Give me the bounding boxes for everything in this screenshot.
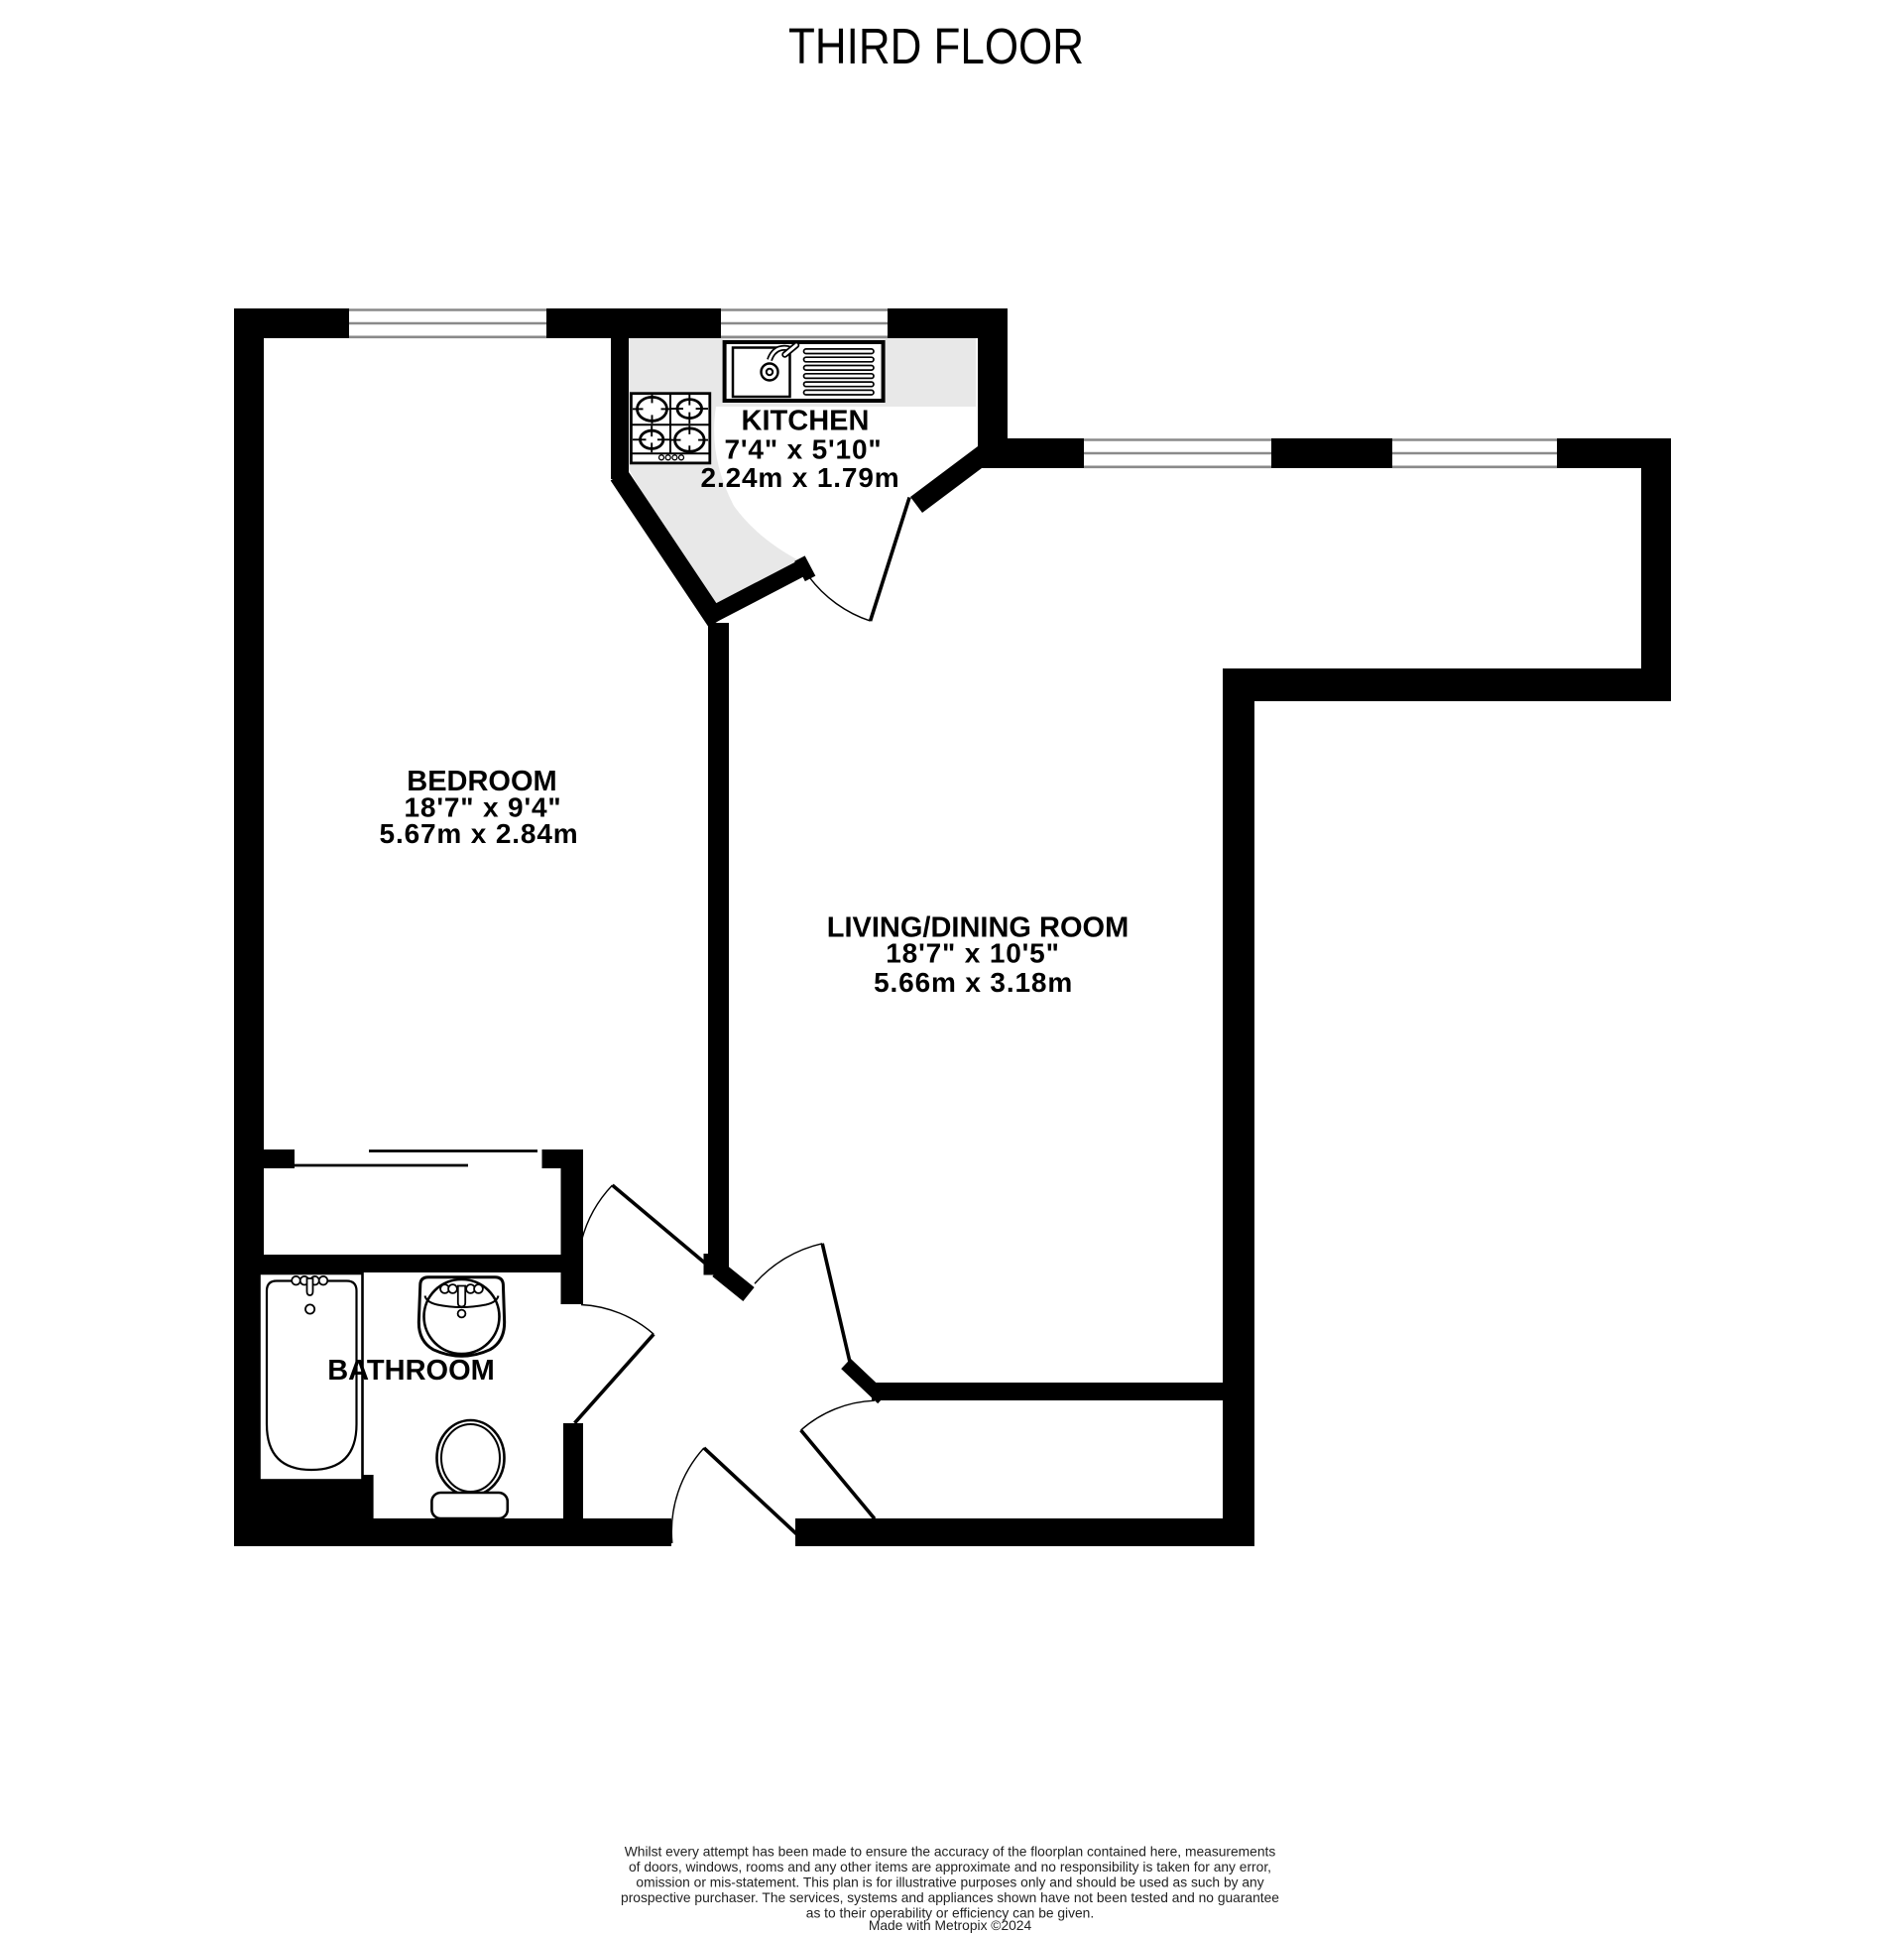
svg-text:2.24m x 1.79m: 2.24m x 1.79m	[701, 462, 900, 493]
svg-text:THIRD FLOOR: THIRD FLOOR	[788, 18, 1084, 74]
svg-text:Whilst every attempt has been: Whilst every attempt has been made to en…	[625, 1845, 1276, 1860]
svg-text:BATHROOM: BATHROOM	[327, 1355, 495, 1387]
svg-text:KITCHEN: KITCHEN	[742, 406, 870, 437]
svg-text:18'7" x 10'5": 18'7" x 10'5"	[886, 938, 1059, 969]
svg-text:prospective purchaser. The ser: prospective purchaser. The services, sys…	[621, 1890, 1279, 1905]
svg-text:Made with Metropix ©2024: Made with Metropix ©2024	[869, 1918, 1032, 1933]
svg-text:5.67m x 2.84m: 5.67m x 2.84m	[380, 818, 579, 849]
svg-text:5.66m x 3.18m: 5.66m x 3.18m	[874, 967, 1073, 998]
svg-text:omission or mis-statement. Thi: omission or mis-statement. This plan is …	[636, 1875, 1263, 1890]
svg-text:of doors, windows, rooms and a: of doors, windows, rooms and any other i…	[629, 1860, 1271, 1874]
svg-text:7'4" x 5'10": 7'4" x 5'10"	[724, 434, 882, 465]
